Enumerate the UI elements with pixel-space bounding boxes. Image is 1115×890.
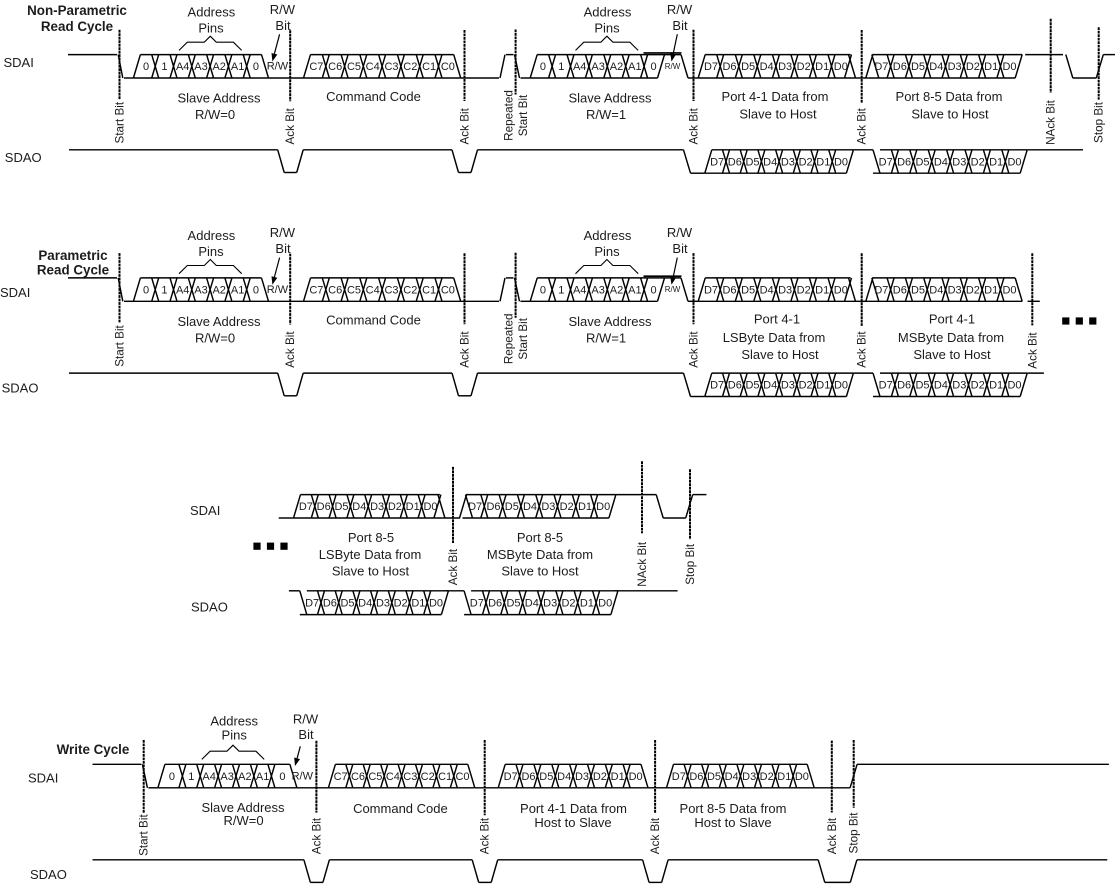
svg-text:A3: A3 — [194, 61, 207, 73]
svg-text:Read Cycle: Read Cycle — [41, 19, 113, 34]
svg-text:A1: A1 — [628, 61, 641, 73]
svg-text:D6: D6 — [323, 598, 337, 610]
svg-text:D0: D0 — [598, 598, 612, 610]
svg-text:Command Code: Command Code — [353, 801, 448, 816]
svg-text:Slave Address: Slave Address — [177, 91, 261, 106]
svg-text:D2: D2 — [388, 501, 402, 513]
svg-text:R/W=0: R/W=0 — [195, 330, 235, 345]
svg-text:D5: D5 — [741, 284, 755, 296]
svg-text:SDAO: SDAO — [191, 600, 228, 615]
svg-text:Ack Bit: Ack Bit — [447, 548, 460, 585]
svg-text:A1: A1 — [231, 61, 244, 73]
svg-text:Stop Bit: Stop Bit — [684, 543, 697, 585]
svg-text:1: 1 — [161, 284, 167, 296]
svg-text:D4: D4 — [929, 61, 943, 73]
svg-text:D5: D5 — [911, 284, 925, 296]
svg-text:D5: D5 — [707, 771, 721, 783]
svg-text:D2: D2 — [966, 61, 980, 73]
svg-text:Slave Address: Slave Address — [568, 91, 652, 106]
svg-text:D4: D4 — [934, 156, 948, 168]
svg-text:D4: D4 — [523, 501, 537, 513]
svg-text:Host to Slave: Host to Slave — [534, 815, 611, 830]
svg-text:D3: D3 — [742, 771, 756, 783]
svg-text:NAck Bit: NAck Bit — [636, 541, 649, 587]
svg-text:D0: D0 — [423, 501, 437, 513]
svg-text:C4: C4 — [366, 61, 380, 73]
svg-text:D0: D0 — [1002, 61, 1016, 73]
svg-text:Address: Address — [188, 5, 236, 20]
svg-text:C6: C6 — [328, 284, 342, 296]
svg-text:R/W: R/W — [293, 711, 319, 726]
svg-text:D0: D0 — [1007, 156, 1021, 168]
svg-text:D5: D5 — [915, 380, 929, 392]
svg-text:A2: A2 — [610, 61, 623, 73]
svg-text:D1: D1 — [816, 380, 830, 392]
svg-text:D2: D2 — [760, 771, 774, 783]
svg-text:D2: D2 — [560, 501, 574, 513]
svg-text:D1: D1 — [815, 284, 829, 296]
svg-text:0: 0 — [650, 61, 656, 73]
svg-text:D6: D6 — [488, 598, 502, 610]
svg-text:D5: D5 — [911, 61, 925, 73]
svg-text:D7: D7 — [305, 598, 319, 610]
svg-text:D6: D6 — [728, 156, 742, 168]
svg-text:A2: A2 — [610, 284, 623, 296]
svg-text:0: 0 — [540, 284, 546, 296]
svg-text:A3: A3 — [591, 284, 604, 296]
svg-text:D2: D2 — [797, 61, 811, 73]
svg-text:D6: D6 — [893, 284, 907, 296]
svg-text:D1: D1 — [578, 501, 592, 513]
svg-text:D1: D1 — [984, 61, 998, 73]
svg-text:D1: D1 — [777, 771, 791, 783]
svg-text:D5: D5 — [340, 598, 354, 610]
svg-text:Ack Bit: Ack Bit — [284, 107, 297, 144]
svg-text:Pins: Pins — [198, 21, 224, 36]
svg-text:C5: C5 — [368, 771, 382, 783]
svg-text:Port 8-5: Port 8-5 — [517, 530, 563, 545]
svg-text:SDAI: SDAI — [4, 55, 34, 70]
svg-text:0: 0 — [279, 771, 285, 783]
svg-text:C1: C1 — [422, 284, 436, 296]
svg-text:Bit: Bit — [672, 18, 688, 33]
svg-text:C4: C4 — [386, 771, 400, 783]
svg-text:D4: D4 — [358, 598, 372, 610]
svg-text:Slave to Host: Slave to Host — [913, 347, 991, 362]
svg-text:Ack Bit: Ack Bit — [284, 331, 297, 368]
svg-text:D7: D7 — [710, 380, 724, 392]
svg-text:D5: D5 — [745, 380, 759, 392]
svg-text:C5: C5 — [347, 284, 361, 296]
svg-text:Start Bit: Start Bit — [114, 101, 127, 143]
svg-text:Host to Slave: Host to Slave — [694, 815, 771, 830]
svg-text:D7: D7 — [704, 61, 718, 73]
svg-text:A3: A3 — [591, 61, 604, 73]
svg-text:SDAO: SDAO — [2, 381, 39, 396]
svg-text:D4: D4 — [760, 284, 774, 296]
svg-text:C3: C3 — [384, 61, 398, 73]
svg-text:C1: C1 — [438, 771, 452, 783]
svg-text:Start Bit: Start Bit — [517, 94, 530, 136]
svg-text:C6: C6 — [351, 771, 365, 783]
svg-text:Non-Parametric: Non-Parametric — [27, 3, 127, 18]
svg-text:D0: D0 — [596, 501, 610, 513]
svg-text:0: 0 — [143, 61, 149, 73]
svg-text:D5: D5 — [745, 156, 759, 168]
svg-text:D1: D1 — [989, 380, 1003, 392]
svg-text:A4: A4 — [176, 61, 189, 73]
svg-text:A2: A2 — [212, 284, 225, 296]
svg-text:0: 0 — [169, 771, 175, 783]
svg-text:D3: D3 — [952, 156, 966, 168]
svg-text:D6: D6 — [893, 61, 907, 73]
svg-text:D6: D6 — [728, 380, 742, 392]
svg-text:D7: D7 — [874, 61, 888, 73]
svg-text:LSByte Data from: LSByte Data from — [723, 330, 826, 345]
svg-text:D4: D4 — [763, 156, 777, 168]
svg-text:D6: D6 — [722, 61, 736, 73]
svg-text:D0: D0 — [834, 380, 848, 392]
svg-text:D7: D7 — [672, 771, 686, 783]
svg-text:R/W=0: R/W=0 — [195, 107, 235, 122]
svg-text:Stop Bit: Stop Bit — [848, 812, 861, 854]
svg-text:D3: D3 — [948, 284, 962, 296]
svg-text:D1: D1 — [406, 501, 420, 513]
svg-text:D3: D3 — [952, 380, 966, 392]
svg-text:Slave to Host: Slave to Host — [741, 347, 819, 362]
svg-text:Port 4-1: Port 4-1 — [754, 312, 800, 327]
svg-text:Ack Bit: Ack Bit — [479, 817, 492, 854]
svg-text:D5: D5 — [741, 61, 755, 73]
svg-text:D3: D3 — [376, 598, 390, 610]
svg-text:D5: D5 — [539, 771, 553, 783]
svg-text:Bit: Bit — [672, 241, 688, 256]
svg-text:C2: C2 — [421, 771, 435, 783]
svg-text:D7: D7 — [468, 501, 482, 513]
svg-text:1: 1 — [558, 61, 564, 73]
svg-text:C7: C7 — [334, 771, 348, 783]
svg-text:D1: D1 — [611, 771, 625, 783]
svg-text:Command Code: Command Code — [326, 312, 421, 327]
svg-text:MSByte Data from: MSByte Data from — [898, 330, 1004, 345]
svg-text:D6: D6 — [689, 771, 703, 783]
svg-text:D3: D3 — [370, 501, 384, 513]
svg-text:D2: D2 — [593, 771, 607, 783]
svg-text:D2: D2 — [799, 156, 813, 168]
svg-text:SDAO: SDAO — [30, 867, 67, 882]
svg-text:D6: D6 — [897, 156, 911, 168]
svg-text:D4: D4 — [525, 598, 539, 610]
svg-text:D7: D7 — [504, 771, 518, 783]
svg-text:A2: A2 — [238, 771, 251, 783]
svg-text:D6: D6 — [317, 501, 331, 513]
svg-text:D0: D0 — [629, 771, 643, 783]
svg-text:D1: D1 — [989, 156, 1003, 168]
svg-text:Ack Bit: Ack Bit — [826, 817, 839, 854]
svg-text:Ack Bit: Ack Bit — [856, 107, 869, 144]
svg-text:Ack Bit: Ack Bit — [459, 331, 472, 368]
svg-text:R/W: R/W — [270, 2, 296, 17]
svg-text:Slave to Host: Slave to Host — [501, 564, 579, 579]
svg-text:Address: Address — [188, 228, 236, 243]
svg-text:C5: C5 — [347, 61, 361, 73]
svg-text:0: 0 — [253, 61, 259, 73]
svg-text:D5: D5 — [506, 598, 520, 610]
svg-text:0: 0 — [143, 284, 149, 296]
svg-text:R/W: R/W — [270, 225, 296, 240]
svg-text:R/W: R/W — [267, 61, 289, 73]
svg-text:D4: D4 — [557, 771, 571, 783]
svg-text:C3: C3 — [384, 284, 398, 296]
svg-text:D3: D3 — [778, 61, 792, 73]
svg-text:R/W: R/W — [267, 284, 289, 296]
svg-text:Start Bit: Start Bit — [114, 324, 127, 366]
svg-text:Slave to Host: Slave to Host — [332, 564, 410, 579]
svg-text:D3: D3 — [948, 61, 962, 73]
svg-text:D6: D6 — [486, 501, 500, 513]
svg-text:0: 0 — [650, 284, 656, 296]
svg-text:D1: D1 — [816, 156, 830, 168]
svg-text:0: 0 — [540, 61, 546, 73]
svg-text:D4: D4 — [352, 501, 366, 513]
svg-text:C2: C2 — [403, 61, 417, 73]
svg-text:Stop Bit: Stop Bit — [1093, 101, 1106, 143]
svg-text:Ack Bit: Ack Bit — [310, 817, 323, 854]
svg-text:Pins: Pins — [222, 728, 248, 743]
svg-text:Address: Address — [584, 228, 632, 243]
svg-text:D4: D4 — [763, 380, 777, 392]
svg-text:C2: C2 — [403, 284, 417, 296]
svg-text:D6: D6 — [897, 380, 911, 392]
svg-text:D7: D7 — [879, 380, 893, 392]
svg-text:D0: D0 — [834, 156, 848, 168]
svg-text:D4: D4 — [929, 284, 943, 296]
svg-text:D2: D2 — [971, 380, 985, 392]
svg-text:R/W: R/W — [667, 225, 693, 240]
svg-text:D3: D3 — [778, 284, 792, 296]
svg-text:1: 1 — [558, 284, 564, 296]
svg-text:Slave Address: Slave Address — [568, 314, 652, 329]
svg-text:A2: A2 — [212, 61, 225, 73]
svg-text:Repeated: Repeated — [502, 313, 515, 364]
svg-text:Ack Bit: Ack Bit — [688, 331, 701, 368]
svg-text:Command Code: Command Code — [326, 89, 421, 104]
svg-text:Slave to Host: Slave to Host — [911, 106, 989, 121]
svg-text:D1: D1 — [984, 284, 998, 296]
svg-text:D5: D5 — [915, 156, 929, 168]
svg-text:0: 0 — [253, 284, 259, 296]
svg-text:A1: A1 — [628, 284, 641, 296]
svg-text:D0: D0 — [834, 61, 848, 73]
svg-text:Port 8-5: Port 8-5 — [348, 530, 394, 545]
svg-text:R/W: R/W — [667, 2, 693, 17]
svg-text:Pins: Pins — [594, 21, 620, 36]
svg-text:D2: D2 — [797, 284, 811, 296]
svg-text:D3: D3 — [541, 501, 555, 513]
svg-text:D7: D7 — [704, 284, 718, 296]
svg-text:C3: C3 — [403, 771, 417, 783]
svg-text:D2: D2 — [799, 380, 813, 392]
svg-text:A4: A4 — [573, 61, 586, 73]
svg-text:R/W: R/W — [292, 770, 314, 782]
svg-text:Read Cycle: Read Cycle — [37, 262, 109, 277]
svg-text:D5: D5 — [334, 501, 348, 513]
svg-text:R/W=0: R/W=0 — [223, 813, 263, 828]
svg-text:D4: D4 — [934, 380, 948, 392]
svg-text:D2: D2 — [561, 598, 575, 610]
svg-text:C7: C7 — [309, 61, 323, 73]
svg-text:D7: D7 — [299, 501, 313, 513]
svg-text:SDAO: SDAO — [5, 150, 42, 165]
svg-text:D1: D1 — [411, 598, 425, 610]
svg-text:C0: C0 — [455, 771, 469, 783]
svg-text:D2: D2 — [966, 284, 980, 296]
svg-text:Pins: Pins — [594, 244, 620, 259]
svg-text:D0: D0 — [795, 771, 809, 783]
svg-text:D0: D0 — [834, 284, 848, 296]
svg-text:C4: C4 — [366, 284, 380, 296]
svg-text:R/W=1: R/W=1 — [586, 330, 626, 345]
svg-text:D6: D6 — [521, 771, 535, 783]
svg-text:D7: D7 — [874, 284, 888, 296]
svg-text:Start Bit: Start Bit — [517, 317, 530, 359]
svg-text:Bit: Bit — [275, 18, 291, 33]
svg-text:Ack Bit: Ack Bit — [649, 817, 662, 854]
svg-text:R/W: R/W — [665, 62, 681, 71]
svg-text:R/W: R/W — [665, 285, 681, 294]
svg-text:Ack Bit: Ack Bit — [856, 331, 869, 368]
svg-text:1: 1 — [161, 61, 167, 73]
svg-text:D2: D2 — [971, 156, 985, 168]
svg-text:D3: D3 — [575, 771, 589, 783]
svg-text:Ack Bit: Ack Bit — [688, 107, 701, 144]
svg-text:C0: C0 — [441, 284, 455, 296]
svg-text:Bit: Bit — [275, 241, 291, 256]
svg-text:A4: A4 — [202, 771, 215, 783]
svg-text:D6: D6 — [722, 284, 736, 296]
svg-text:D7: D7 — [470, 598, 484, 610]
svg-text:SDAI: SDAI — [28, 771, 58, 786]
svg-text:D0: D0 — [1007, 380, 1021, 392]
svg-text:D3: D3 — [543, 598, 557, 610]
svg-text:A1: A1 — [231, 284, 244, 296]
svg-text:Port 4-1: Port 4-1 — [929, 312, 975, 327]
svg-text:Ack Bit: Ack Bit — [459, 107, 472, 144]
svg-text:C6: C6 — [328, 61, 342, 73]
svg-text:Pins: Pins — [198, 244, 224, 259]
svg-text:A4: A4 — [176, 284, 189, 296]
svg-text:A1: A1 — [256, 771, 269, 783]
svg-text:D1: D1 — [815, 61, 829, 73]
svg-text:Port 8-5 Data from: Port 8-5 Data from — [896, 89, 1003, 104]
svg-text:SDAI: SDAI — [0, 285, 30, 300]
svg-text:Parametric: Parametric — [38, 248, 108, 263]
svg-text:R/W=1: R/W=1 — [586, 107, 626, 122]
svg-text:Port 4-1 Data from: Port 4-1 Data from — [722, 89, 829, 104]
svg-text:Write Cycle: Write Cycle — [57, 742, 130, 757]
svg-text:C7: C7 — [309, 284, 323, 296]
svg-text:Port 4-1 Data from: Port 4-1 Data from — [520, 801, 627, 816]
svg-text:SDAI: SDAI — [190, 503, 220, 518]
svg-text:D4: D4 — [760, 61, 774, 73]
svg-text:D2: D2 — [394, 598, 408, 610]
svg-text:D1: D1 — [580, 598, 594, 610]
svg-text:D3: D3 — [781, 380, 795, 392]
svg-text:C0: C0 — [441, 61, 455, 73]
svg-text:D7: D7 — [879, 156, 893, 168]
svg-text:Port 8-5 Data from: Port 8-5 Data from — [680, 801, 787, 816]
svg-text:D0: D0 — [1002, 284, 1016, 296]
svg-text:D3: D3 — [781, 156, 795, 168]
svg-text:D7: D7 — [710, 156, 724, 168]
svg-text:A4: A4 — [573, 284, 586, 296]
svg-text:MSByte Data from: MSByte Data from — [487, 547, 593, 562]
svg-text:Address: Address — [584, 5, 632, 20]
svg-text:Address: Address — [210, 714, 258, 729]
svg-text:Repeated: Repeated — [502, 90, 515, 141]
svg-text:NAck Bit: NAck Bit — [1045, 99, 1058, 145]
svg-text:A3: A3 — [220, 771, 233, 783]
svg-text:Ack Bit: Ack Bit — [1026, 332, 1039, 369]
svg-text:LSByte Data from: LSByte Data from — [319, 547, 422, 562]
svg-text:Slave to Host: Slave to Host — [739, 106, 817, 121]
svg-text:D5: D5 — [505, 501, 519, 513]
svg-text:A3: A3 — [194, 284, 207, 296]
svg-text:Slave Address: Slave Address — [177, 314, 261, 329]
svg-text:1: 1 — [188, 771, 194, 783]
svg-text:C1: C1 — [422, 61, 436, 73]
svg-text:Start Bit: Start Bit — [138, 814, 151, 856]
svg-text:D4: D4 — [725, 771, 739, 783]
svg-text:D0: D0 — [429, 598, 443, 610]
svg-text:Bit: Bit — [298, 727, 314, 742]
